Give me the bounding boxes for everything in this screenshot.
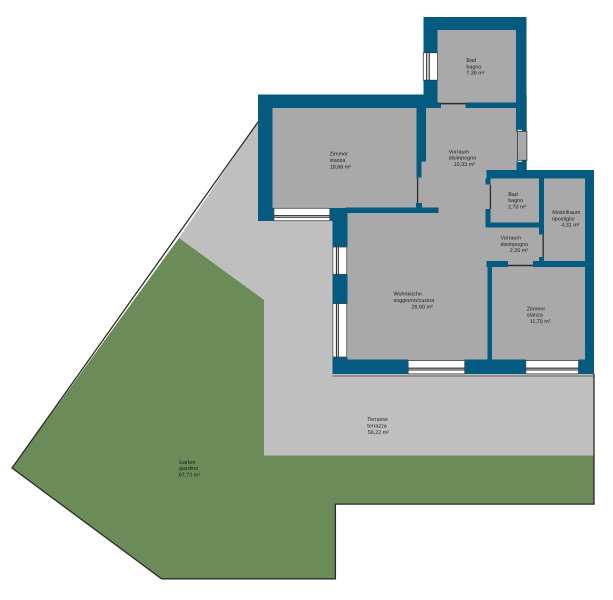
svg-text:stanza: stanza <box>527 313 543 319</box>
svg-text:4,31 m²: 4,31 m² <box>561 223 579 229</box>
svg-text:Wohnküche: Wohnküche <box>394 292 422 298</box>
svg-text:Bad: Bad <box>466 58 476 64</box>
svg-text:2,70 m²: 2,70 m² <box>508 205 526 211</box>
svg-text:giardino: giardino <box>179 466 198 472</box>
svg-text:Vorraum: Vorraum <box>449 149 470 155</box>
svg-text:disimpegno: disimpegno <box>501 242 529 248</box>
svg-text:Bad: Bad <box>508 192 518 198</box>
svg-text:10,33 m²: 10,33 m² <box>454 162 475 168</box>
svg-text:Vorraum: Vorraum <box>501 236 522 242</box>
svg-text:soggiorno/cucina: soggiorno/cucina <box>394 298 435 304</box>
svg-text:Zimmer: Zimmer <box>527 306 545 312</box>
svg-text:Garten: Garten <box>179 460 195 466</box>
svg-text:terrazza: terrazza <box>367 424 386 430</box>
svg-text:Zimmer: Zimmer <box>330 152 348 158</box>
svg-text:Abstellraum: Abstellraum <box>552 210 581 216</box>
svg-text:2,20 m²: 2,20 m² <box>510 248 528 254</box>
svg-text:bagno: bagno <box>466 64 481 70</box>
svg-text:7,39 m²: 7,39 m² <box>466 71 484 77</box>
svg-text:Terrasse: Terrasse <box>367 417 388 423</box>
svg-text:bagno: bagno <box>508 198 523 204</box>
svg-text:26,90 m²: 26,90 m² <box>412 304 433 310</box>
svg-text:67,72 m²: 67,72 m² <box>179 472 200 478</box>
svg-text:disimpegno: disimpegno <box>449 156 477 162</box>
svg-text:stanza: stanza <box>330 158 346 164</box>
svg-text:18,66 m²: 18,66 m² <box>330 164 351 170</box>
svg-text:ripostiglio: ripostiglio <box>552 217 575 223</box>
svg-text:56,22 m²: 56,22 m² <box>368 430 389 436</box>
svg-text:11,70 m²: 11,70 m² <box>530 319 551 325</box>
